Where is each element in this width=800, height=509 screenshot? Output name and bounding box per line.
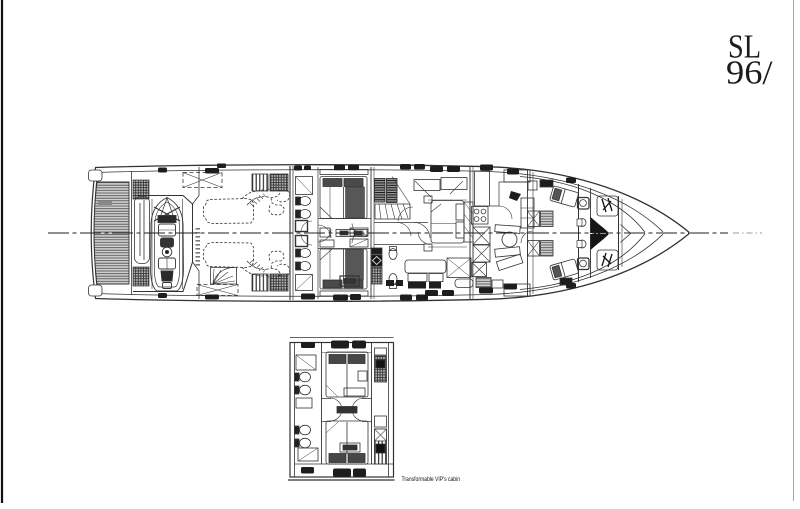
svg-text:96/: 96/ (726, 55, 773, 92)
svg-text:Transformable VIP's cabin: Transformable VIP's cabin (402, 476, 461, 483)
